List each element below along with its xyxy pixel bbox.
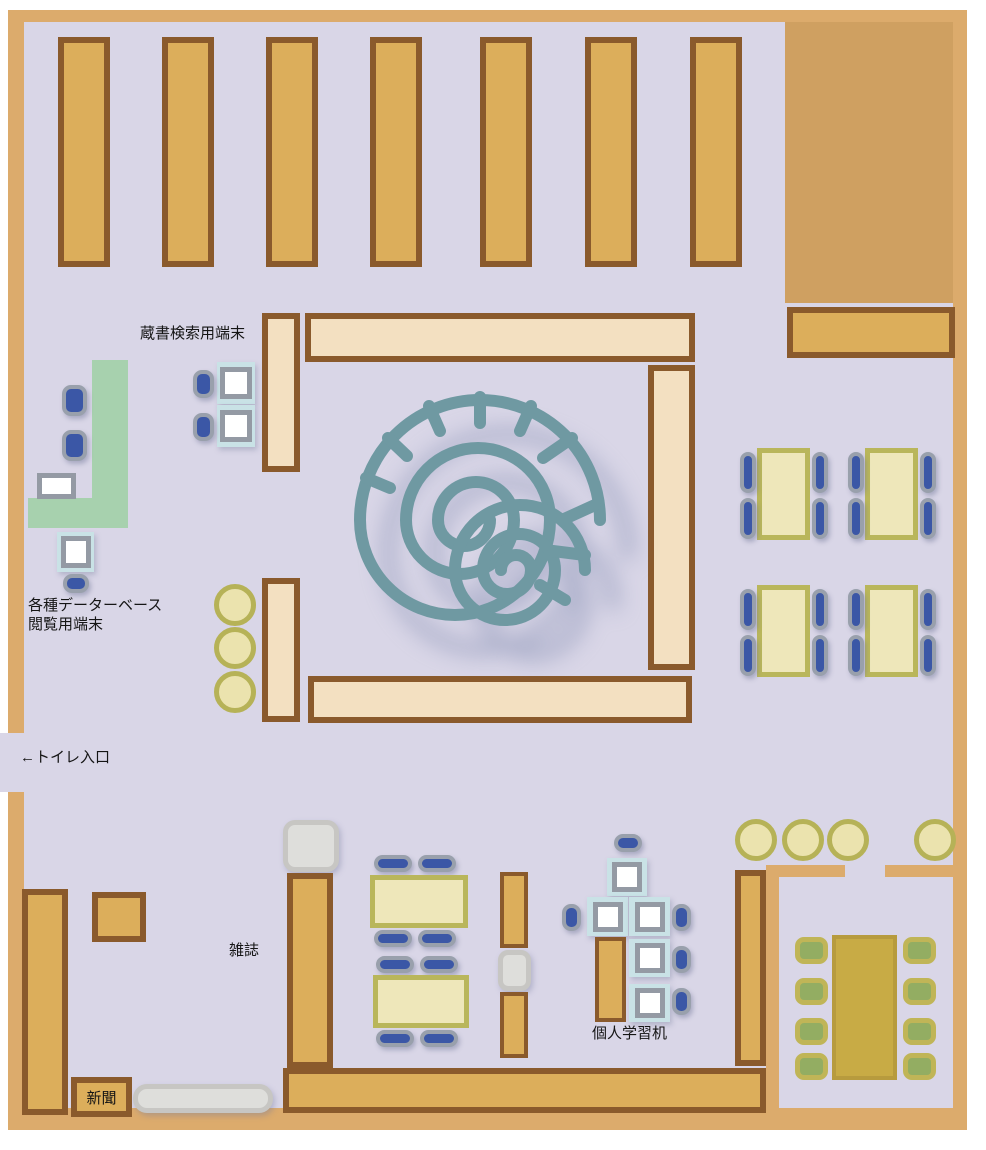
chair bbox=[193, 370, 214, 398]
chair bbox=[672, 988, 691, 1015]
catalog-terminal-desk bbox=[217, 405, 255, 447]
newspaper-label: 新聞 bbox=[86, 1087, 116, 1108]
monitor bbox=[635, 902, 665, 932]
study-divider bbox=[595, 937, 626, 1022]
study-desk bbox=[629, 897, 670, 936]
chair bbox=[740, 498, 756, 539]
meeting-room-wall-left bbox=[766, 877, 779, 1108]
chair bbox=[376, 956, 414, 973]
bookshelf bbox=[370, 37, 422, 267]
chair bbox=[672, 946, 691, 973]
divider-shelf bbox=[500, 992, 528, 1058]
chair bbox=[374, 855, 412, 872]
reading-table bbox=[865, 585, 918, 677]
service-counter-horizontal bbox=[28, 498, 128, 528]
bookshelf-long-bottom bbox=[283, 1068, 766, 1113]
reading-table bbox=[373, 975, 469, 1028]
round-stool bbox=[782, 819, 824, 861]
counter-monitor bbox=[37, 473, 76, 499]
monitor bbox=[635, 988, 665, 1018]
chair bbox=[62, 430, 87, 461]
chair bbox=[614, 834, 642, 852]
chair bbox=[418, 930, 456, 947]
study-desk bbox=[587, 897, 628, 936]
reading-table bbox=[757, 448, 810, 540]
catalog-terminals-label: 蔵書検索用端末 bbox=[140, 324, 245, 343]
monitor bbox=[220, 367, 252, 399]
chair bbox=[420, 1030, 458, 1047]
reading-table bbox=[757, 585, 810, 677]
spiral-artwork bbox=[285, 355, 675, 705]
round-stool bbox=[735, 819, 777, 861]
bookshelf bbox=[480, 37, 532, 267]
chair bbox=[920, 635, 936, 676]
chair bbox=[812, 452, 828, 493]
monitor bbox=[593, 902, 623, 932]
study-desks-label: 個人学習机 bbox=[592, 1024, 667, 1043]
bench bbox=[133, 1084, 273, 1113]
meeting-room-wall-top bbox=[766, 865, 845, 877]
chair bbox=[848, 589, 864, 630]
monitor bbox=[61, 536, 91, 568]
round-stool bbox=[214, 627, 256, 669]
meeting-table bbox=[832, 935, 897, 1080]
database-terminals-label-line1: 各種データーベース bbox=[28, 596, 162, 615]
divider-shelf bbox=[500, 872, 528, 948]
chair bbox=[812, 589, 828, 630]
ottoman bbox=[283, 820, 339, 872]
chair bbox=[420, 956, 458, 973]
reading-table bbox=[370, 875, 468, 928]
database-terminal-desk bbox=[57, 532, 94, 572]
chair bbox=[418, 855, 456, 872]
chair bbox=[920, 452, 936, 493]
round-stool bbox=[827, 819, 869, 861]
chair bbox=[672, 904, 691, 931]
bookshelf-vertical-right bbox=[735, 870, 766, 1066]
chair bbox=[740, 635, 756, 676]
meeting-room-wall-top bbox=[885, 865, 953, 877]
round-stool bbox=[914, 819, 956, 861]
toilet-entrance-label: ←トイレ入口 bbox=[20, 748, 110, 767]
catalog-terminal-desk bbox=[217, 362, 255, 404]
bookshelf bbox=[690, 37, 742, 267]
chair bbox=[848, 635, 864, 676]
chair bbox=[920, 498, 936, 539]
meeting-chair bbox=[795, 1018, 828, 1045]
ottoman bbox=[498, 950, 531, 991]
bookshelf-small bbox=[92, 892, 146, 942]
meeting-chair bbox=[903, 1053, 936, 1080]
chair bbox=[848, 498, 864, 539]
monitor bbox=[612, 862, 642, 892]
database-terminals-label: 各種データーベース 閲覧用端末 bbox=[28, 596, 162, 634]
meeting-chair bbox=[903, 937, 936, 964]
bookshelf-tall bbox=[22, 889, 68, 1115]
newspaper-shelf: 新聞 bbox=[71, 1077, 132, 1117]
bookshelf bbox=[266, 37, 318, 267]
monitor bbox=[220, 410, 252, 442]
database-terminals-label-line2: 閲覧用端末 bbox=[28, 615, 162, 634]
chair bbox=[63, 574, 89, 593]
magazines-label: 雑誌 bbox=[229, 941, 259, 960]
chair bbox=[740, 589, 756, 630]
bookshelf bbox=[585, 37, 637, 267]
meeting-chair bbox=[795, 1053, 828, 1080]
chair bbox=[62, 385, 87, 416]
study-desk bbox=[629, 984, 670, 1022]
bookshelf-horizontal bbox=[787, 307, 955, 358]
chair bbox=[376, 1030, 414, 1047]
meeting-chair bbox=[903, 978, 936, 1005]
round-stool bbox=[214, 671, 256, 713]
magazine-shelf-vertical bbox=[287, 873, 333, 1068]
round-stool bbox=[214, 584, 256, 626]
study-desk bbox=[629, 939, 670, 977]
reading-table bbox=[865, 448, 918, 540]
chair bbox=[848, 452, 864, 493]
chair bbox=[193, 413, 214, 441]
meeting-chair bbox=[903, 1018, 936, 1045]
bookshelf bbox=[58, 37, 110, 267]
library-floor-map: 蔵書検索用端末 各種データーベース 閲覧用端末 ←トイレ入口 新聞 雑誌 bbox=[0, 0, 986, 1150]
chair bbox=[374, 930, 412, 947]
chair bbox=[812, 635, 828, 676]
chair bbox=[562, 904, 581, 931]
study-desk bbox=[607, 858, 647, 896]
chair bbox=[812, 498, 828, 539]
bookshelf bbox=[162, 37, 214, 267]
chair bbox=[740, 452, 756, 493]
closed-corner-block bbox=[785, 22, 953, 303]
monitor bbox=[635, 943, 665, 973]
meeting-chair bbox=[795, 937, 828, 964]
chair bbox=[920, 589, 936, 630]
meeting-chair bbox=[795, 978, 828, 1005]
